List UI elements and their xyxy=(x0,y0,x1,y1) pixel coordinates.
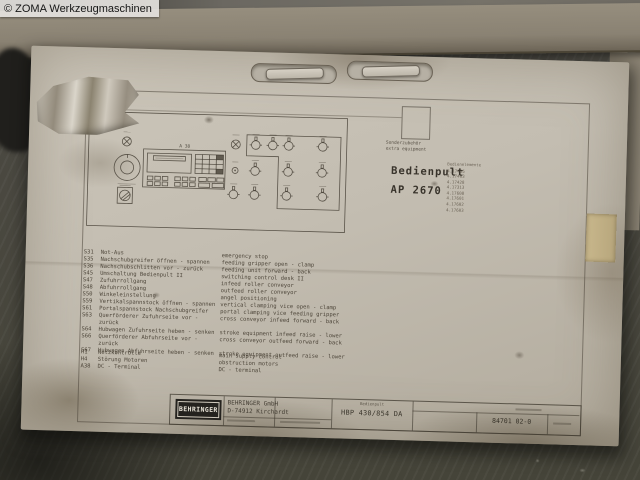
illegible-text xyxy=(515,408,541,411)
terminal-a38-box: A 38 xyxy=(143,142,226,189)
parts-list-items: 4.17405 4.17403 4.17428 4.17313 4.17608 … xyxy=(446,168,481,214)
legend-switches: S31 Not-Aus emergency stop S35 Nachschub… xyxy=(81,249,384,362)
legend-code: A38 xyxy=(80,363,97,370)
title-block-divider xyxy=(412,411,579,417)
photo-of-technical-drawing: A 38 xyxy=(0,0,640,480)
handle-strap xyxy=(362,65,420,77)
parts-list-item: 4.17603 xyxy=(446,207,480,214)
handle-slot-left xyxy=(251,63,337,84)
behringer-logo: BEHRINGER xyxy=(175,399,222,420)
legend-code: S63 xyxy=(82,312,99,326)
handle-strap xyxy=(266,67,324,79)
control-panel-drawing: A 38 xyxy=(85,110,348,233)
keypad-grid xyxy=(195,154,224,174)
company-address: D-74912 Kirchardt xyxy=(227,407,289,416)
key-switch-symbol xyxy=(232,162,238,174)
machine-type-label: Bedienpult xyxy=(332,400,413,407)
handle-slot-right xyxy=(347,61,433,82)
panel-terminal-label: A 38 xyxy=(179,143,190,149)
illegible-text xyxy=(227,419,255,422)
parts-list: Bedienelemente 4.17405 4.17403 4.17428 4… xyxy=(446,161,481,213)
accessory-option-box xyxy=(401,106,431,140)
illegible-text xyxy=(280,420,320,423)
illegible-text xyxy=(553,422,571,425)
title-block-divider xyxy=(223,396,225,425)
button-cluster-middle xyxy=(175,177,196,187)
legend-code: S66 xyxy=(81,333,98,347)
emergency-stop-symbol xyxy=(117,185,132,203)
watermark-text: © ZOMA Werkzeugmaschinen xyxy=(4,3,152,15)
machine-type-cell: Bedienpult HBP 430/854 DA xyxy=(331,400,412,418)
button-cluster-right xyxy=(199,177,224,187)
selector-switch-field xyxy=(227,134,330,202)
watermark-bar: © ZOMA Werkzeugmaschinen xyxy=(0,0,159,17)
machine-type-value: HBP 430/854 DA xyxy=(331,408,412,418)
rotary-switch-symbol xyxy=(114,154,141,184)
parts-list-header: Bedienelemente xyxy=(447,161,481,167)
masking-tape xyxy=(585,213,617,262)
button-cluster-left xyxy=(147,176,168,186)
logo-text: BEHRINGER xyxy=(179,405,218,414)
accessory-label: Sonderzubehör extra equipment xyxy=(386,141,427,153)
pilot-lamp-symbol xyxy=(122,132,131,146)
accessory-label-en: extra equipment xyxy=(386,146,427,153)
drawing-number: 84701 02-0 xyxy=(476,416,547,426)
company-info: BEHRINGER GmbH D-74912 Kirchardt xyxy=(227,399,289,416)
